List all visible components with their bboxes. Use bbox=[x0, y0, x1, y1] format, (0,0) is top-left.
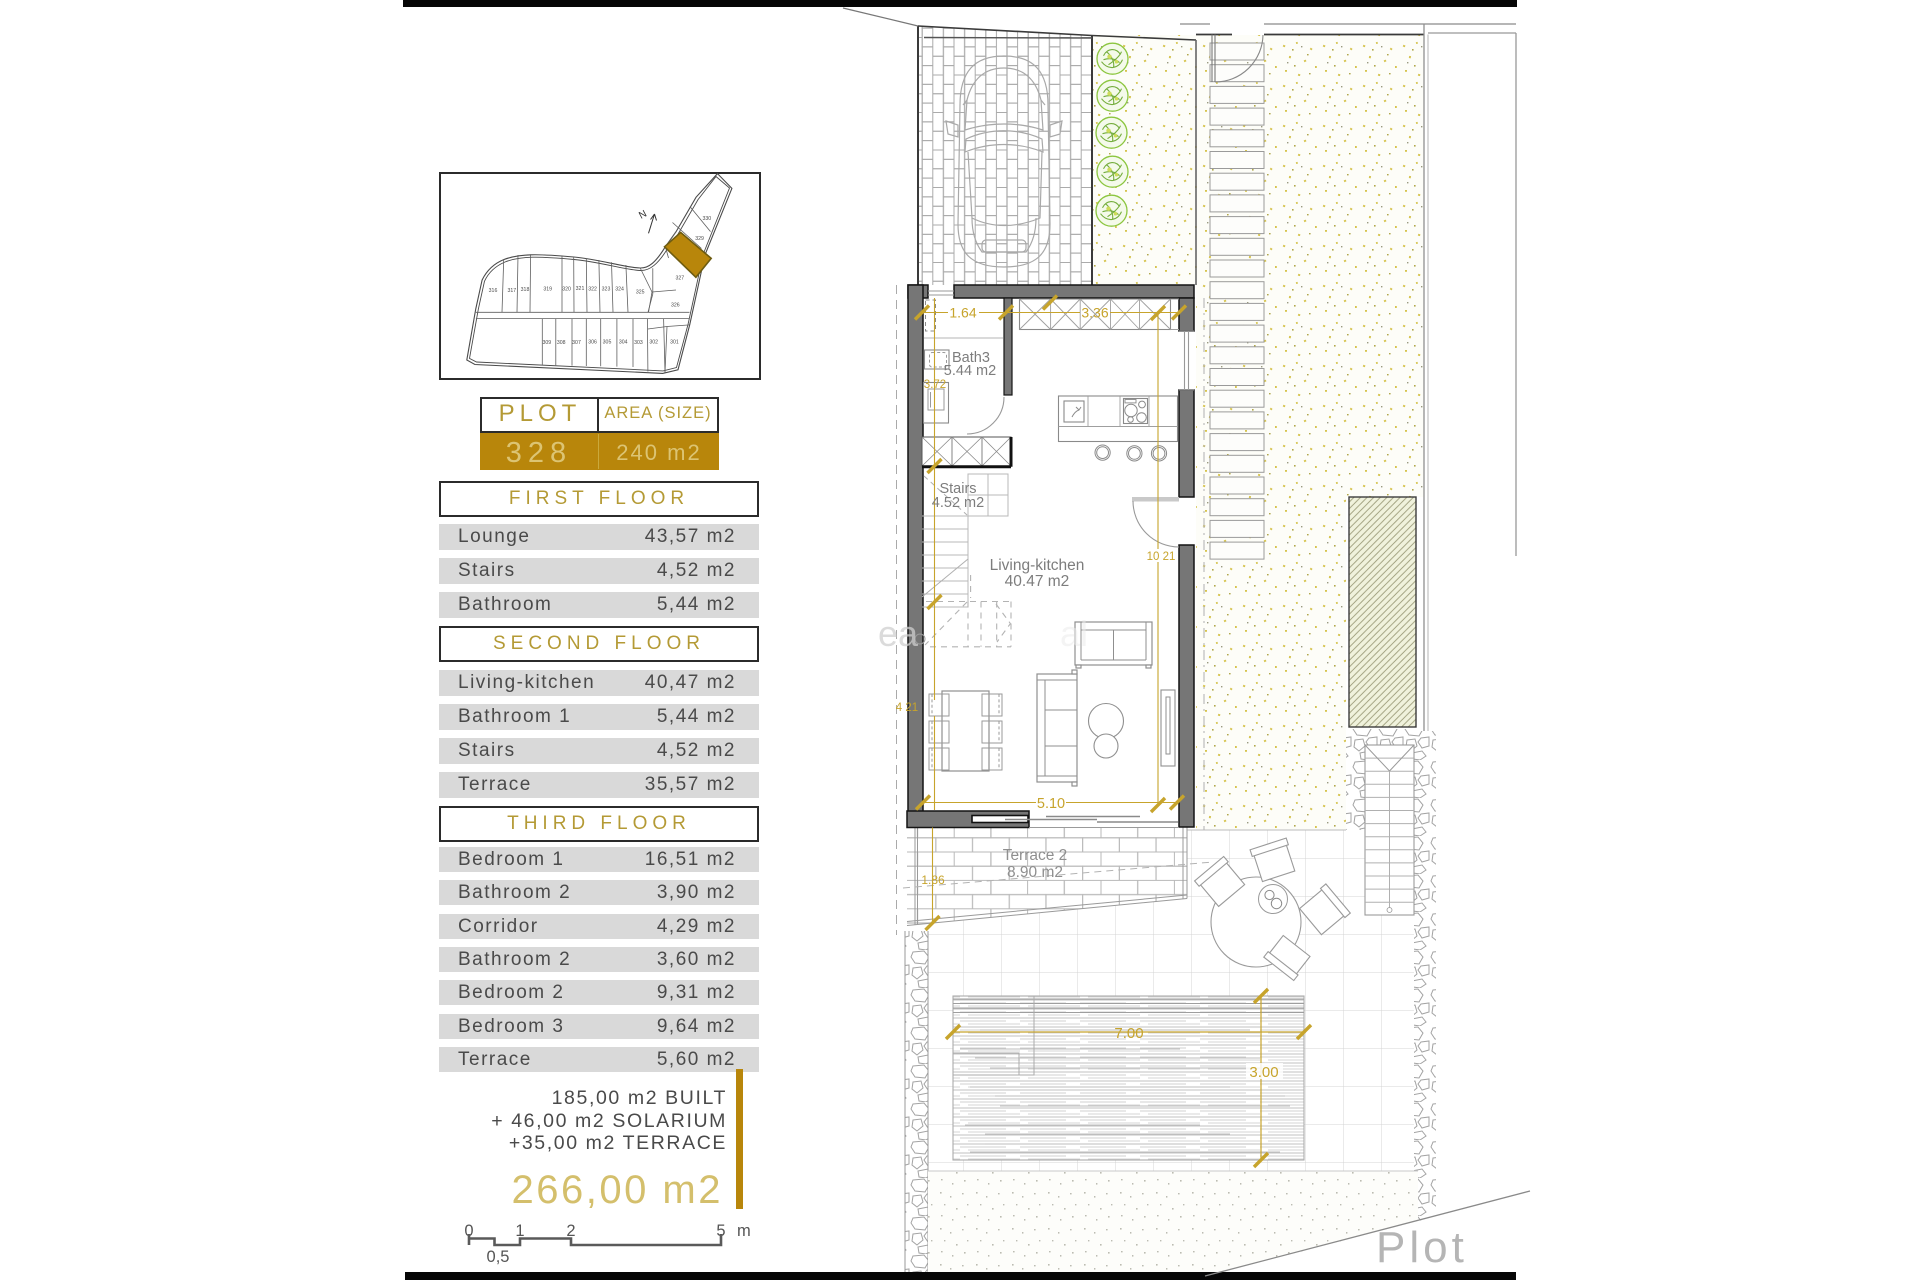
svg-text:317: 317 bbox=[507, 288, 516, 294]
svg-text:40.47 m2: 40.47 m2 bbox=[1005, 573, 1070, 590]
svg-text:322: 322 bbox=[588, 287, 597, 293]
svg-text:321: 321 bbox=[576, 286, 585, 292]
svg-text:326: 326 bbox=[671, 302, 680, 308]
svg-text:319: 319 bbox=[543, 287, 552, 293]
svg-text:Living-kitchen: Living-kitchen bbox=[990, 557, 1085, 574]
svg-text:7.00: 7.00 bbox=[1114, 1025, 1143, 1042]
svg-text:Terrace 2: Terrace 2 bbox=[1003, 847, 1068, 864]
svg-text:329: 329 bbox=[695, 236, 704, 242]
svg-text:306: 306 bbox=[588, 340, 597, 346]
svg-text:325: 325 bbox=[636, 290, 645, 296]
svg-text:327: 327 bbox=[675, 275, 684, 281]
svg-text:8.90 m2: 8.90 m2 bbox=[1007, 864, 1063, 881]
svg-text:4 21: 4 21 bbox=[896, 702, 918, 714]
svg-text:3.00: 3.00 bbox=[1249, 1064, 1278, 1081]
svg-text:Plot: Plot bbox=[1376, 1223, 1468, 1272]
svg-text:m: m bbox=[737, 1222, 751, 1240]
svg-text:3.72: 3.72 bbox=[924, 379, 946, 391]
svg-text:1.64: 1.64 bbox=[949, 305, 976, 321]
svg-text:304: 304 bbox=[619, 340, 628, 346]
svg-text:316: 316 bbox=[489, 288, 498, 294]
svg-text:323: 323 bbox=[602, 287, 611, 293]
svg-text:309: 309 bbox=[542, 340, 551, 346]
svg-text:318: 318 bbox=[521, 287, 530, 293]
svg-text:302: 302 bbox=[649, 340, 658, 346]
svg-text:10 21: 10 21 bbox=[1147, 551, 1176, 563]
svg-text:308: 308 bbox=[557, 340, 566, 346]
svg-text:4.52 m2: 4.52 m2 bbox=[932, 495, 984, 511]
svg-text:ea: ea bbox=[878, 613, 919, 654]
svg-text:al: al bbox=[1060, 613, 1088, 654]
svg-text:305: 305 bbox=[603, 340, 612, 346]
svg-text:3.36: 3.36 bbox=[1081, 305, 1108, 321]
svg-text:5.44 m2: 5.44 m2 bbox=[944, 363, 996, 379]
svg-text:303: 303 bbox=[634, 340, 643, 346]
svg-text:307: 307 bbox=[572, 340, 581, 346]
svg-text:0,5: 0,5 bbox=[487, 1248, 510, 1266]
svg-text:324: 324 bbox=[615, 287, 624, 293]
svg-text:5.10: 5.10 bbox=[1037, 796, 1065, 812]
svg-text:1.86: 1.86 bbox=[921, 873, 945, 887]
svg-text:330: 330 bbox=[702, 216, 711, 222]
svg-text:301: 301 bbox=[670, 340, 679, 346]
svg-text:320: 320 bbox=[562, 287, 571, 293]
